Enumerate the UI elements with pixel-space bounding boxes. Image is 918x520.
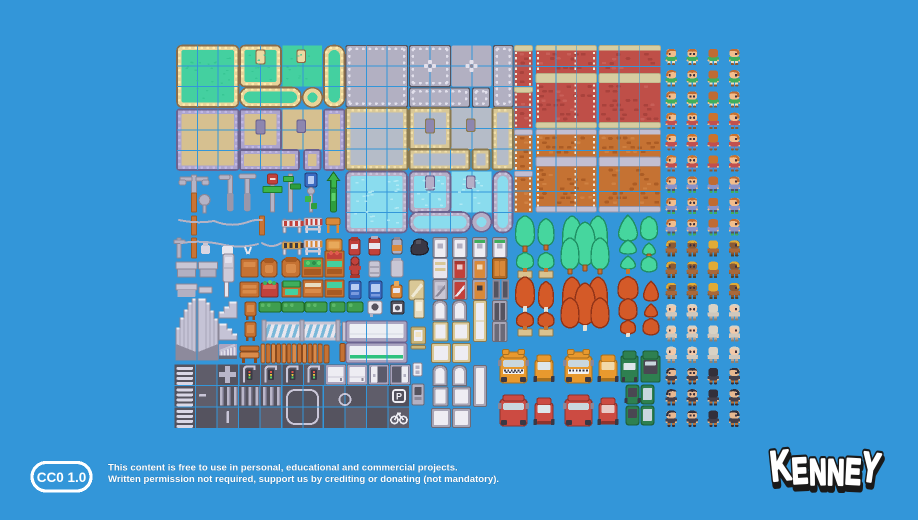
svg-text:This content is free to use in: This content is free to use in personal,…	[108, 463, 458, 474]
svg-text:N: N	[809, 452, 827, 492]
svg-text:P: P	[396, 392, 402, 402]
svg-text:E: E	[791, 451, 809, 492]
svg-text:CC0 1.0: CC0 1.0	[37, 470, 87, 485]
svg-text:Written permission not require: Written permission not required, support…	[108, 474, 499, 485]
svg-text:N: N	[827, 453, 845, 493]
